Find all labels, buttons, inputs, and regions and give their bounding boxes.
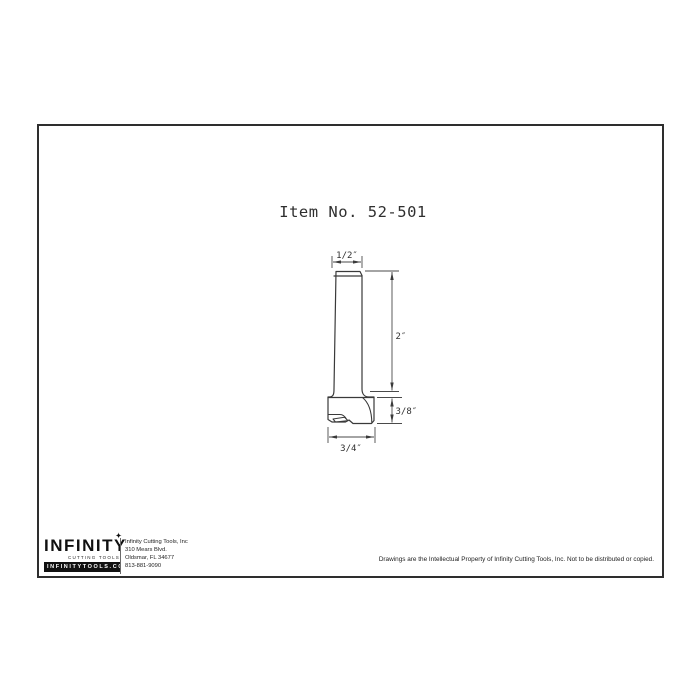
dim-label-cutter-diameter: 3/4″ bbox=[340, 444, 362, 454]
company-phone: 813-881-9090 bbox=[125, 562, 188, 570]
dim-label-cutter-height: 3/8″ bbox=[396, 407, 418, 417]
technical-drawing: Item No. 52-501 bbox=[0, 0, 700, 700]
flute-curve bbox=[363, 398, 372, 423]
company-street: 310 Mears Blvd. bbox=[125, 546, 188, 554]
router-bit-outline bbox=[328, 272, 374, 424]
infinity-logo-block: INFINITY✦ CUTTING TOOLS INFINITYTOOLS.CO… bbox=[44, 537, 120, 572]
copyright-disclaimer: Drawings are the Intellectual Property o… bbox=[379, 556, 654, 563]
carbide-insert bbox=[333, 417, 348, 422]
item-number-title: Item No. 52-501 bbox=[279, 203, 426, 221]
dim-label-shank-length: 2″ bbox=[396, 332, 407, 342]
company-address-block: Infinity Cutting Tools, Inc 310 Mears Bl… bbox=[125, 538, 188, 570]
dim-label-shank-diameter: 1/2″ bbox=[336, 251, 358, 261]
logo-website-bar: INFINITYTOOLS.COM bbox=[44, 562, 120, 572]
company-name: Infinity Cutting Tools, Inc bbox=[125, 538, 188, 546]
logo-tagline: CUTTING TOOLS bbox=[44, 555, 120, 560]
drawing-page: Item No. 52-501 bbox=[0, 0, 700, 700]
company-city: Oldsmar, FL 34677 bbox=[125, 554, 188, 562]
infinity-logo: INFINITY✦ bbox=[44, 537, 120, 554]
infinity-logo-text: INFINITY bbox=[44, 536, 127, 555]
title-block-divider bbox=[120, 538, 121, 574]
bit-body-outline bbox=[328, 272, 374, 424]
